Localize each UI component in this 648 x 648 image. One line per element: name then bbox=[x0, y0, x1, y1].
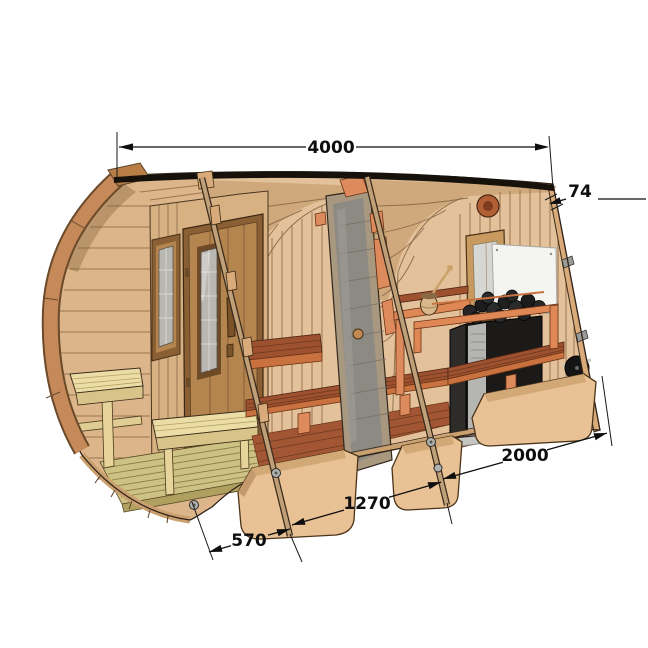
support-foot-middle bbox=[392, 436, 462, 510]
porch-side-window bbox=[152, 234, 180, 361]
dimension-1270-label: 1270 bbox=[343, 494, 390, 514]
barrel-sauna-technical-drawing: 4000 74 570 1270 2000 bbox=[0, 0, 648, 648]
glass-door-knob bbox=[353, 329, 363, 339]
dimension-4000-label: 4000 bbox=[307, 138, 354, 158]
dimension-570-label: 570 bbox=[231, 531, 267, 551]
dimension-74-label: 74 bbox=[568, 182, 592, 202]
door-hinge-icon bbox=[186, 378, 190, 387]
sauna-cutaway-illustration: 4000 74 570 1270 2000 bbox=[0, 0, 648, 648]
dimension-74: 74 bbox=[545, 182, 646, 210]
door-window bbox=[197, 242, 221, 380]
dimension-2000-label: 2000 bbox=[501, 446, 548, 466]
door-hinge-icon bbox=[185, 268, 189, 277]
air-vent bbox=[477, 195, 499, 217]
dimension-570: 570 bbox=[209, 529, 290, 552]
